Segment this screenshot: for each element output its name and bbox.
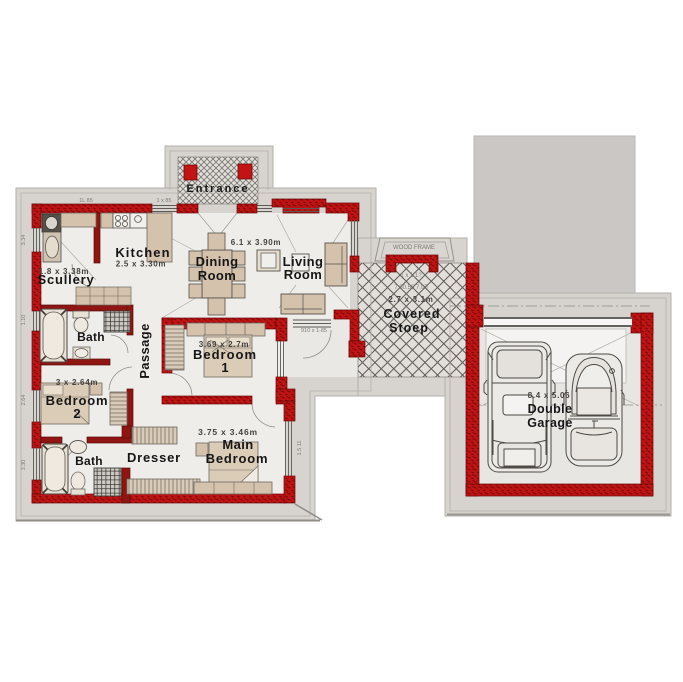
svg-text:Stoep: Stoep (389, 321, 429, 335)
svg-text:1 x 85: 1 x 85 (157, 198, 172, 204)
svg-text:2.7 x 3.1m: 2.7 x 3.1m (388, 295, 433, 304)
svg-text:Garage: Garage (527, 416, 572, 430)
svg-text:2.5 x 3.30m: 2.5 x 3.30m (116, 260, 166, 269)
svg-text:3.30: 3.30 (21, 460, 27, 471)
svg-text:910 x 1-85: 910 x 1-85 (301, 328, 327, 334)
svg-text:Kitchen: Kitchen (115, 245, 170, 260)
svg-text:Scullery: Scullery (38, 272, 95, 287)
svg-text:Bath: Bath (75, 454, 103, 468)
svg-text:3 x 2.64m: 3 x 2.64m (56, 378, 98, 387)
svg-text:Dresser: Dresser (127, 450, 181, 465)
svg-text:3.75 x 3.46m: 3.75 x 3.46m (198, 427, 258, 437)
svg-text:Room: Room (198, 268, 236, 283)
svg-text:1.5 11: 1.5 11 (297, 441, 303, 456)
svg-text:Room: Room (284, 267, 322, 282)
svg-text:1 x 1.1?: 1 x 1.1? (400, 273, 422, 279)
svg-text:1.10: 1.10 (21, 315, 27, 326)
svg-text:3.34: 3.34 (21, 235, 27, 246)
svg-text:Passage: Passage (137, 323, 152, 379)
svg-text:Bath: Bath (77, 330, 105, 344)
svg-text:Bedroom: Bedroom (206, 451, 269, 466)
svg-text:2: 2 (73, 406, 80, 421)
svg-text:1L 85: 1L 85 (79, 198, 93, 204)
svg-text:Covered: Covered (383, 307, 440, 321)
svg-text:1: 1 (221, 360, 228, 375)
svg-text:Main: Main (222, 437, 253, 452)
svg-text:2.64: 2.64 (21, 395, 27, 406)
svg-text:Double: Double (528, 402, 573, 416)
svg-text:7.30.50 7.05: 7.30.50 7.05 (394, 285, 428, 291)
svg-text:WOOD FRAME: WOOD FRAME (393, 245, 435, 251)
svg-text:6.1 x 3.90m: 6.1 x 3.90m (231, 238, 281, 247)
svg-text:Dining: Dining (196, 254, 239, 269)
svg-text:8.4 x 5.06: 8.4 x 5.06 (528, 391, 571, 400)
svg-text:Entrance: Entrance (186, 183, 249, 195)
